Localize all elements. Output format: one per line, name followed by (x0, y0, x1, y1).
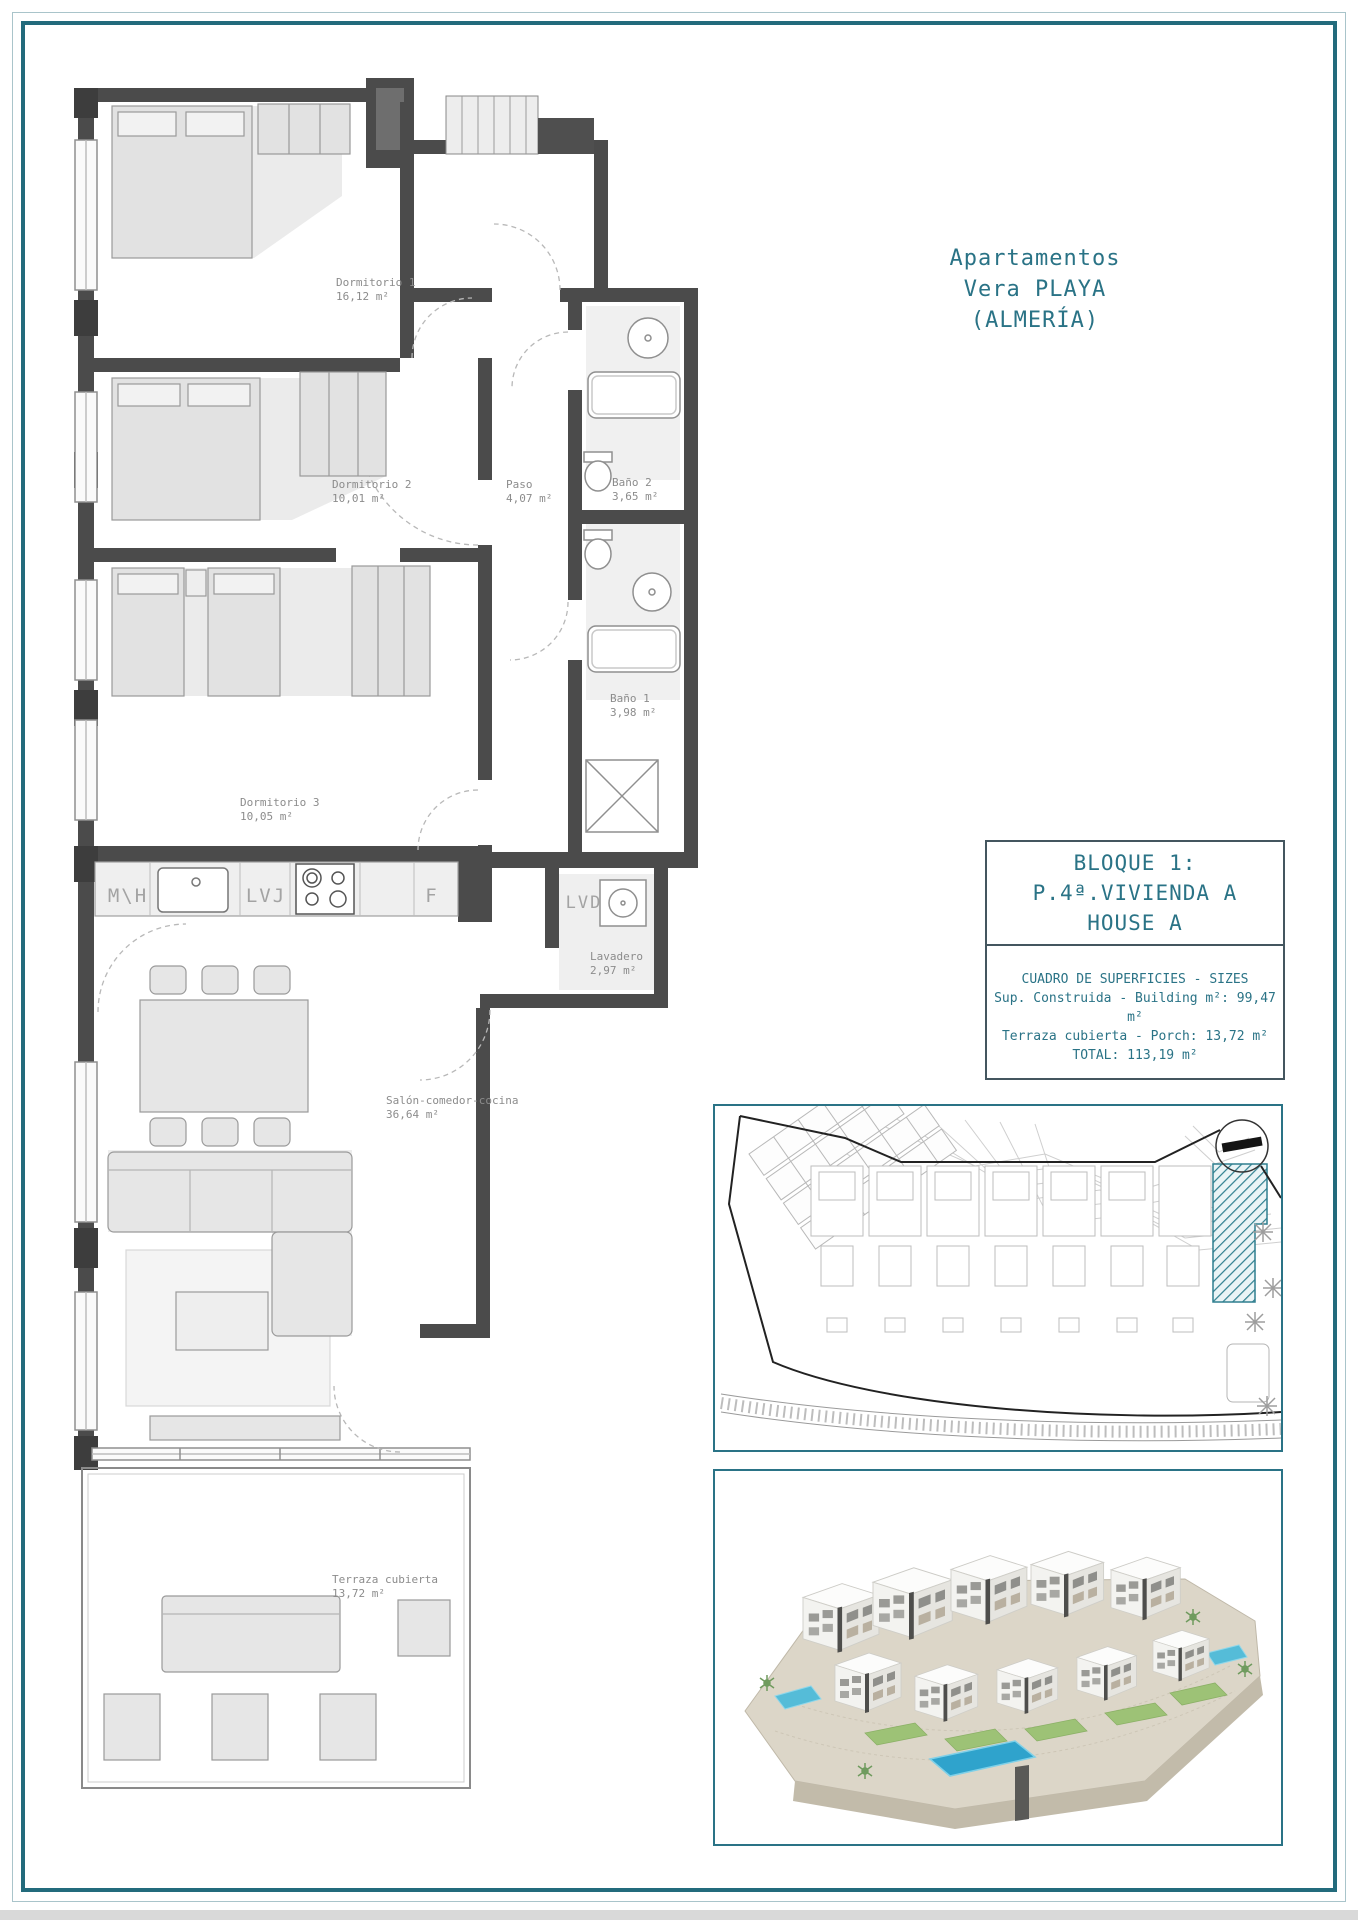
label-paso: Paso (506, 478, 533, 491)
site-plan-drawing (715, 1106, 1281, 1450)
label-dormitorio3: Dormitorio 3 (240, 796, 319, 809)
highlighted-unit (1213, 1164, 1267, 1302)
label-salon-area: 36,64 m² (386, 1108, 439, 1121)
project-title-line3: (ALMERÍA) (880, 305, 1190, 336)
project-title-line2: Vera PLAYA (880, 274, 1190, 305)
label-dormitorio1-area: 16,12 m² (336, 290, 389, 303)
label-bano1: Baño 1 (610, 692, 650, 705)
label-f: F (425, 885, 438, 907)
label-dormitorio2: Dormitorio 2 (332, 478, 411, 491)
label-lavadero: Lavadero (590, 950, 643, 963)
label-salon: Salón-comedor-cocina (386, 1094, 518, 1107)
site-plan-inset (713, 1104, 1283, 1452)
label-dormitorio2-area: 10,01 m² (332, 492, 385, 505)
label-paso-area: 4,07 m² (506, 492, 552, 505)
unit-floor-label: P.4ª.VIVIENDA A (987, 878, 1283, 908)
unit-info-box: BLOQUE 1: P.4ª.VIVIENDA A HOUSE A CUADRO… (985, 840, 1285, 1080)
cooktop-icon (296, 864, 354, 914)
label-lvd: LVD (566, 893, 603, 913)
label-bano2-area: 3,65 m² (612, 490, 658, 503)
sizes-porch: Terraza cubierta - Porch: 13,72 m² (987, 1027, 1283, 1046)
project-title: Apartamentos Vera PLAYA (ALMERÍA) (880, 243, 1190, 336)
sizes-total: TOTAL: 113,19 m² (987, 1046, 1283, 1065)
label-lavadero-area: 2,97 m² (590, 964, 636, 977)
label-mvh: M\H (108, 885, 148, 907)
unit-block-label: BLOQUE 1: (987, 848, 1283, 878)
sizes-built: Sup. Construida - Building m²: 99,47 m² (987, 989, 1283, 1027)
label-dormitorio3-area: 10,05 m² (240, 810, 293, 823)
unit-sizes-table: CUADRO DE SUPERFICIES - SIZES Sup. Const… (987, 946, 1283, 1065)
entry-stairs (446, 96, 594, 154)
label-terraza: Terraza cubierta (332, 1573, 438, 1586)
label-lvj: LVJ (246, 885, 286, 907)
label-bano1-area: 3,98 m² (610, 706, 656, 719)
sizes-title: CUADRO DE SUPERFICIES - SIZES (987, 970, 1283, 989)
unit-house-label: HOUSE A (987, 908, 1283, 938)
unit-row (811, 1166, 1211, 1332)
kitchen-sink-icon (158, 868, 228, 912)
site-pool (1227, 1344, 1269, 1402)
living-furniture (108, 966, 352, 1440)
aerial-render-drawing (715, 1471, 1281, 1844)
unit-info-titles: BLOQUE 1: P.4ª.VIVIENDA A HOUSE A (987, 842, 1283, 946)
page-bottom-edge (0, 1910, 1358, 1920)
aerial-render-inset (713, 1469, 1283, 1846)
label-terraza-area: 13,72 m² (332, 1587, 385, 1600)
label-dormitorio1: Dormitorio 1 (336, 276, 415, 289)
label-bano2: Baño 2 (612, 476, 652, 489)
project-title-line1: Apartamentos (880, 243, 1190, 274)
plan-sheet: Dormitorio 1 16,12 m² Dormitorio 2 10,01… (0, 0, 1358, 1920)
terrace (82, 1468, 470, 1788)
road (721, 1394, 1281, 1441)
